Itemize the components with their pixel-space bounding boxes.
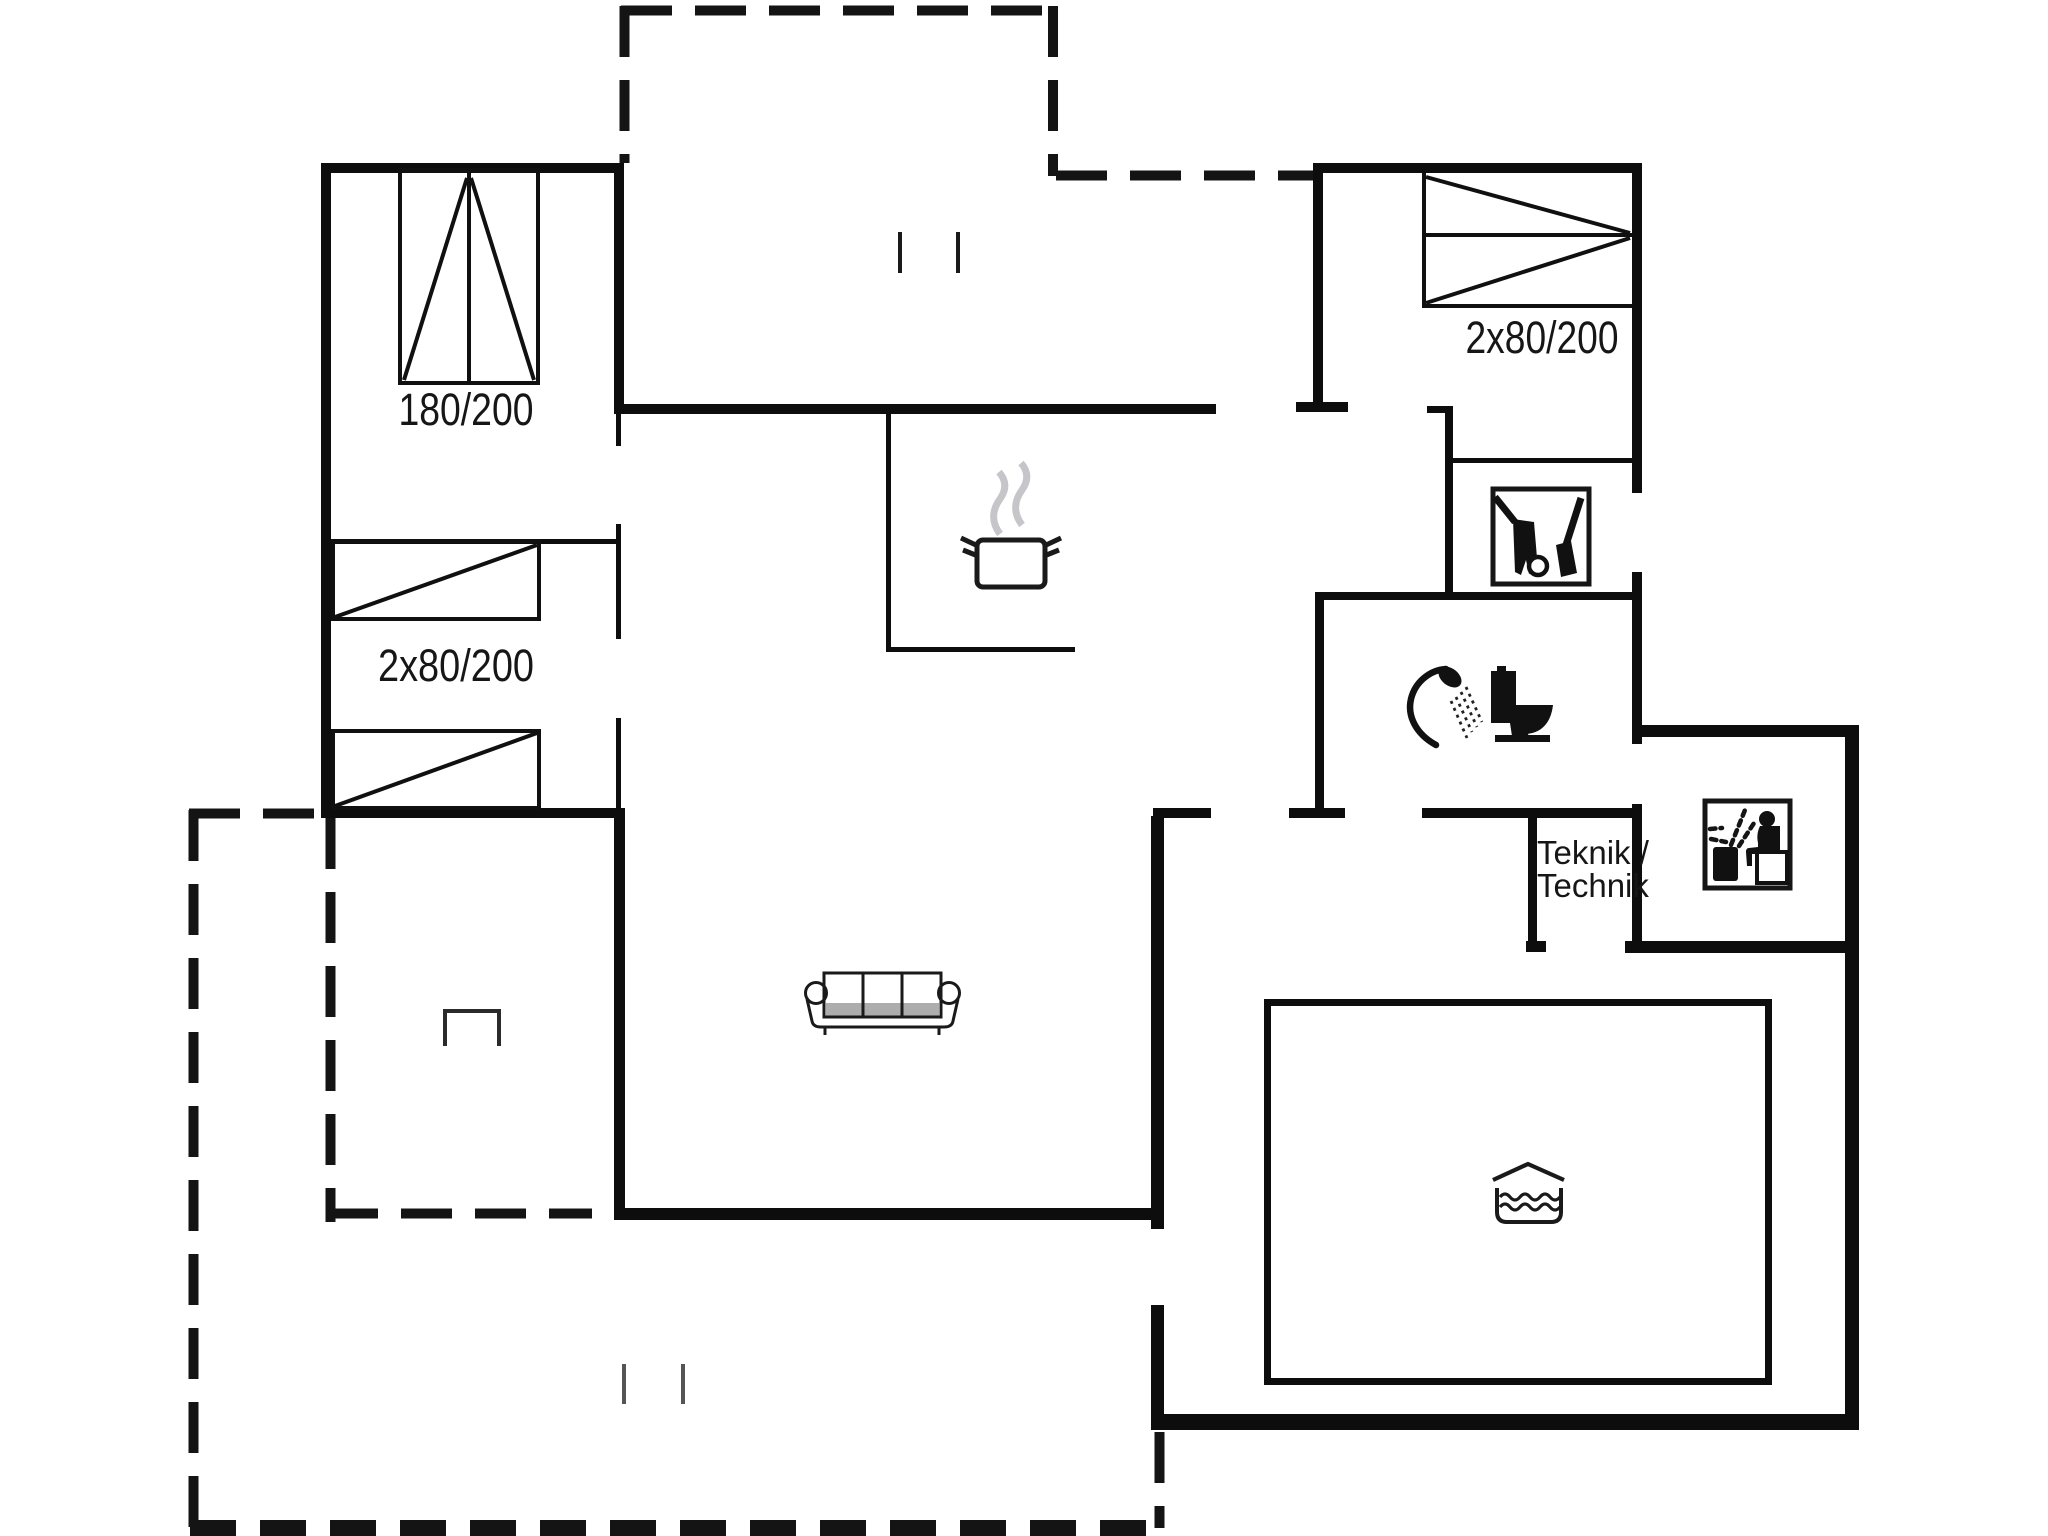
svg-text:Teknik /: Teknik / bbox=[1537, 834, 1650, 871]
svg-text:2x80/200: 2x80/200 bbox=[1466, 312, 1619, 363]
svg-text:180/200: 180/200 bbox=[399, 384, 534, 435]
svg-text:Technik: Technik bbox=[1537, 867, 1649, 904]
svg-text:2x80/200: 2x80/200 bbox=[378, 640, 534, 691]
